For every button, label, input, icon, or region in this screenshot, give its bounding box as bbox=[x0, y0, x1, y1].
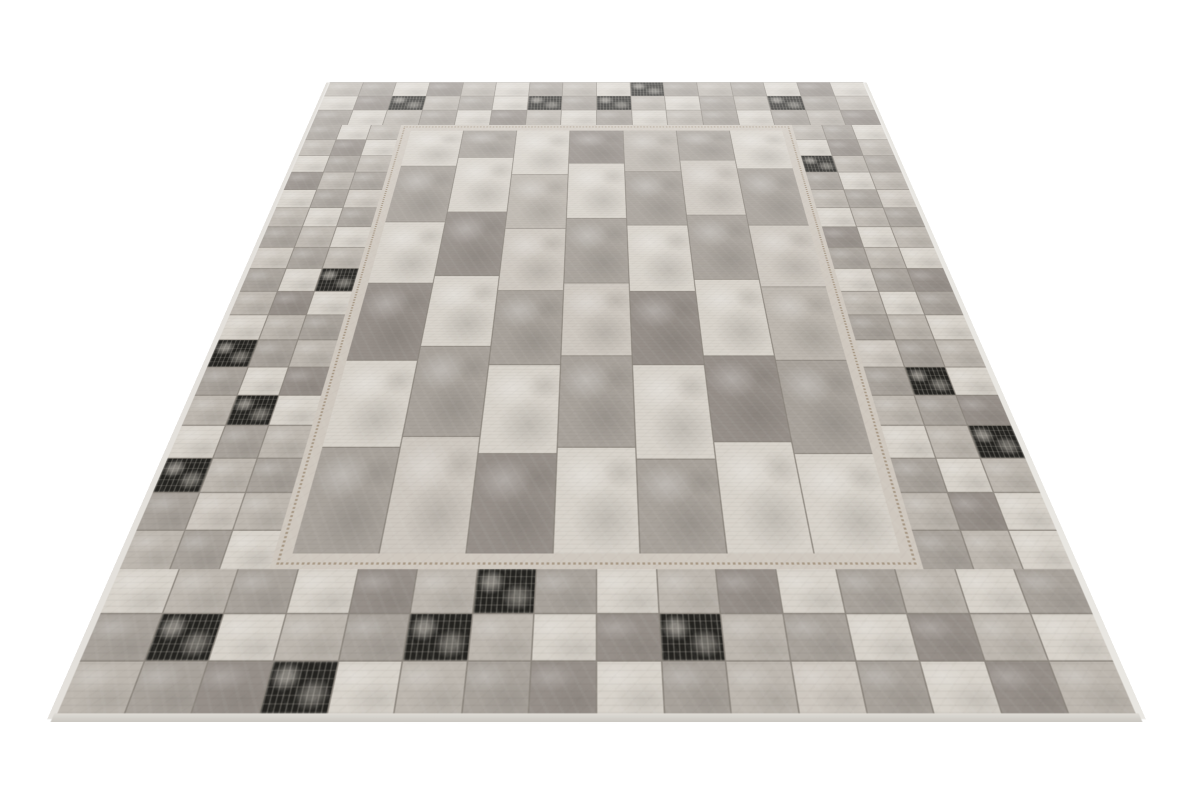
border-tile bbox=[830, 82, 868, 95]
border-tile bbox=[395, 662, 467, 713]
rug bbox=[57, 82, 1135, 713]
border-tile bbox=[797, 82, 835, 95]
border-tile bbox=[822, 125, 857, 140]
rug-border-top bbox=[312, 82, 881, 124]
border-tile bbox=[353, 96, 392, 110]
border-tile bbox=[461, 82, 496, 95]
border-tile bbox=[822, 227, 863, 247]
border-tile bbox=[657, 569, 720, 612]
rug-edge-front bbox=[51, 713, 1143, 722]
border-tile bbox=[303, 208, 343, 227]
border-tile bbox=[597, 82, 630, 95]
field-tile bbox=[558, 356, 635, 447]
border-tile bbox=[347, 110, 387, 125]
border-tile bbox=[662, 662, 731, 713]
border-tile bbox=[561, 110, 596, 125]
field-tile bbox=[489, 291, 563, 364]
border-tile bbox=[327, 662, 401, 713]
border-tile bbox=[801, 96, 840, 110]
border-tile bbox=[419, 110, 457, 125]
border-tile bbox=[423, 96, 460, 110]
border-tile bbox=[717, 569, 782, 612]
border-tile bbox=[733, 96, 770, 110]
border-tile bbox=[350, 172, 387, 189]
border-tile bbox=[454, 110, 491, 125]
field-tile bbox=[633, 365, 715, 458]
border-tile bbox=[856, 662, 933, 713]
border-tile bbox=[411, 569, 476, 612]
border-tile bbox=[274, 614, 347, 661]
rug-border-bottom bbox=[57, 569, 1135, 713]
border-tile bbox=[473, 569, 536, 612]
field-tile bbox=[680, 161, 746, 215]
border-tile bbox=[529, 82, 563, 95]
border-tile bbox=[359, 82, 397, 95]
border-tile bbox=[310, 190, 349, 208]
border-tile bbox=[864, 156, 902, 172]
border-tile bbox=[665, 96, 701, 110]
border-tile bbox=[458, 96, 494, 110]
border-tile bbox=[495, 82, 530, 95]
border-tile bbox=[533, 614, 596, 661]
border-tile bbox=[699, 96, 735, 110]
border-tile bbox=[852, 125, 888, 140]
border-tile bbox=[776, 569, 844, 612]
border-tile bbox=[490, 110, 526, 125]
border-tile bbox=[632, 110, 668, 125]
border-tile bbox=[858, 140, 895, 155]
border-tile bbox=[836, 569, 906, 612]
border-tile bbox=[324, 156, 361, 172]
border-tile bbox=[597, 614, 660, 661]
border-tile bbox=[312, 110, 352, 125]
border-tile bbox=[791, 662, 865, 713]
border-tile bbox=[783, 614, 854, 661]
border-tile bbox=[597, 662, 663, 713]
border-tile bbox=[838, 172, 876, 189]
border-tile bbox=[835, 96, 874, 110]
border-tile bbox=[526, 110, 562, 125]
field-tile bbox=[435, 212, 506, 275]
border-tile bbox=[792, 125, 826, 140]
border-tile bbox=[295, 227, 336, 247]
field-tile bbox=[569, 131, 624, 163]
border-tile bbox=[260, 662, 337, 713]
border-tile bbox=[806, 110, 846, 125]
border-tile bbox=[827, 140, 863, 155]
border-tile bbox=[801, 156, 837, 172]
border-tile bbox=[383, 110, 422, 125]
field-tile bbox=[567, 163, 626, 218]
border-tile bbox=[846, 614, 919, 661]
border-tile bbox=[318, 96, 357, 110]
border-tile bbox=[664, 82, 699, 95]
border-tile bbox=[225, 569, 297, 612]
border-tile bbox=[771, 110, 810, 125]
border-tile bbox=[721, 614, 789, 661]
border-tile bbox=[730, 82, 766, 95]
border-tile bbox=[659, 614, 725, 661]
field-tile bbox=[512, 131, 570, 175]
border-tile bbox=[330, 140, 366, 155]
border-tile bbox=[767, 96, 805, 110]
field-tile bbox=[677, 131, 735, 160]
border-tile bbox=[597, 96, 631, 110]
border-tile bbox=[597, 569, 658, 612]
border-tile bbox=[336, 125, 371, 140]
field-tile bbox=[459, 131, 517, 158]
border-tile bbox=[393, 82, 430, 95]
border-tile bbox=[806, 172, 843, 189]
border-tile bbox=[701, 110, 738, 125]
field-tile bbox=[564, 219, 628, 283]
border-tile bbox=[362, 140, 397, 155]
field-tile bbox=[506, 175, 568, 228]
border-tile bbox=[324, 82, 362, 95]
border-tile bbox=[403, 614, 471, 661]
field-tile bbox=[479, 365, 560, 453]
field-tile bbox=[730, 131, 793, 169]
border-tile bbox=[468, 614, 534, 661]
field-tile bbox=[625, 172, 687, 225]
border-tile bbox=[530, 662, 596, 713]
field-tile bbox=[561, 283, 631, 355]
border-tile bbox=[834, 269, 877, 291]
border-tile bbox=[317, 172, 355, 189]
border-tile bbox=[287, 569, 357, 612]
border-tile bbox=[870, 172, 909, 189]
field-tile bbox=[421, 276, 499, 346]
border-tile bbox=[535, 569, 596, 612]
border-tile bbox=[349, 569, 417, 612]
border-tile bbox=[367, 125, 401, 140]
border-tile bbox=[727, 662, 799, 713]
field-tile bbox=[401, 131, 463, 166]
border-tile bbox=[339, 614, 410, 661]
border-tile bbox=[736, 110, 774, 125]
border-tile bbox=[527, 96, 562, 110]
border-tile bbox=[816, 208, 855, 227]
field-tile bbox=[637, 459, 727, 553]
field-tile bbox=[498, 229, 565, 291]
product-photo-stage bbox=[0, 0, 1200, 800]
border-tile bbox=[667, 110, 703, 125]
field-tile bbox=[467, 454, 557, 554]
border-tile bbox=[630, 82, 664, 95]
border-tile bbox=[388, 96, 426, 110]
border-tile bbox=[563, 82, 596, 95]
border-tile bbox=[597, 110, 632, 125]
border-tile bbox=[492, 96, 528, 110]
border-tile bbox=[832, 156, 869, 172]
field-tile bbox=[627, 225, 695, 290]
field-tile bbox=[554, 448, 640, 553]
border-tile bbox=[462, 662, 531, 713]
field-tile bbox=[623, 131, 680, 172]
field-tile bbox=[630, 291, 704, 364]
border-tile bbox=[356, 156, 392, 172]
border-tile bbox=[796, 140, 831, 155]
border-tile bbox=[828, 247, 870, 268]
border-tile bbox=[811, 190, 849, 208]
border-tile bbox=[427, 82, 463, 95]
border-tile bbox=[697, 82, 732, 95]
border-tile bbox=[562, 96, 596, 110]
border-tile bbox=[764, 82, 801, 95]
field-tile bbox=[448, 158, 513, 212]
border-tile bbox=[841, 110, 881, 125]
border-tile bbox=[631, 96, 666, 110]
border-tile bbox=[286, 247, 329, 268]
